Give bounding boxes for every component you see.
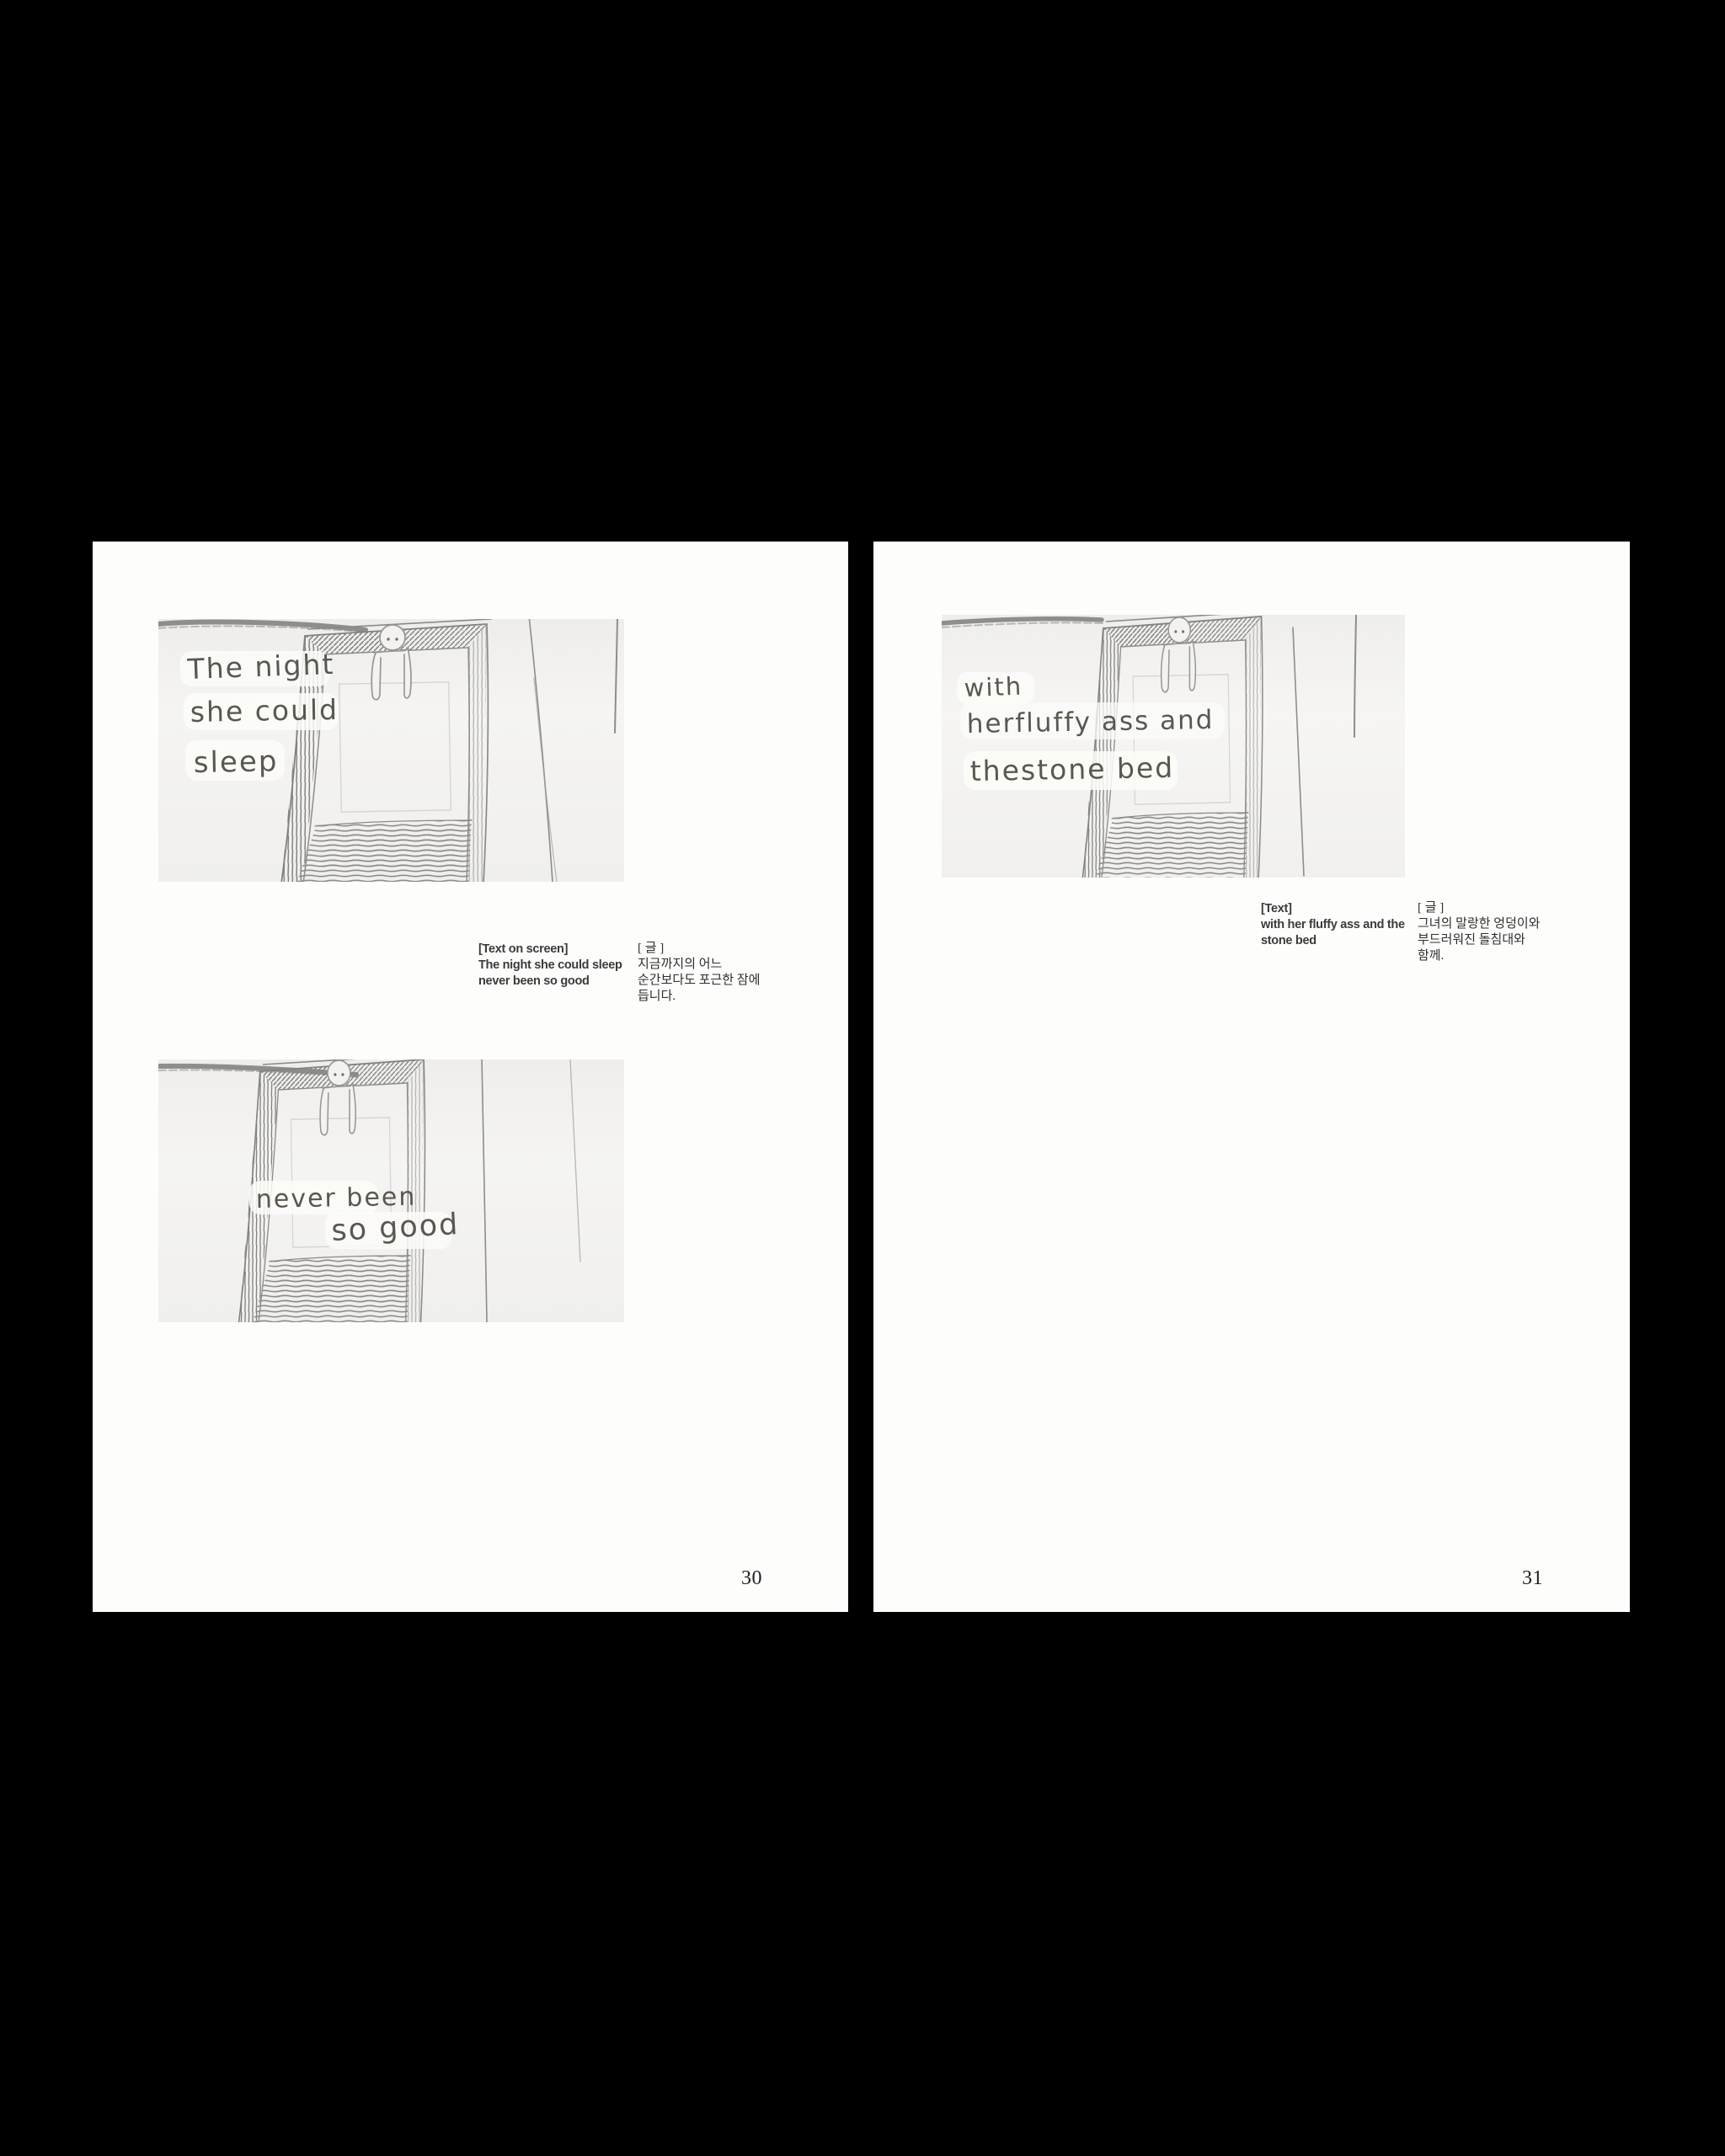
caption-en-line: never been so good — [478, 974, 632, 990]
caption-ko-line: 부드러워진 돌침대와 — [1418, 932, 1586, 948]
book-page-right: with herfluffy ass and thestone bed [Tex… — [873, 542, 1630, 1612]
handwritten-line: with — [964, 672, 1023, 702]
caption-en-line: The night she could sleep — [478, 958, 632, 974]
caption-ko-line: 그녀의 말랑한 엉덩이와 — [1418, 916, 1586, 932]
caption-english: [Text on screen] The night she could sle… — [478, 942, 632, 990]
caption-ko-line: 순간보다도 포근한 잠에 — [638, 973, 806, 989]
handwritten-line: she could — [190, 693, 339, 728]
caption-en-line: stone bed — [1261, 933, 1414, 949]
handwritten-line: never been — [256, 1182, 417, 1214]
handwritten-line: thestone bed — [969, 751, 1174, 787]
caption-ko-line: 함께. — [1418, 948, 1586, 964]
handwritten-line: herfluffy ass and — [967, 705, 1215, 739]
caption-ko-line: 듭니다. — [638, 989, 806, 1005]
caption-ko-label: [ 글 ] — [638, 941, 806, 957]
sketch-panel-never-been: never been so good — [158, 1059, 624, 1322]
book-page-left: The night she could sleep [Text on scree… — [93, 542, 848, 1612]
pdf-canvas: { "left_page": { "page_number": "30", "p… — [0, 0, 1725, 2156]
sketch-panel-night-sleep: The night she could sleep — [158, 619, 624, 882]
handwritten-line: sleep — [193, 744, 278, 780]
caption-english: [Text] with her fluffy ass and the stone… — [1261, 901, 1414, 949]
handwritten-line: The night — [186, 648, 335, 686]
caption-ko-line: 지금까지의 어느 — [638, 957, 806, 973]
caption-korean: [ 글 ] 지금까지의 어느 순간보다도 포근한 잠에 듭니다. — [638, 941, 806, 1005]
caption-ko-label: [ 글 ] — [1418, 900, 1586, 916]
handwritten-line: so good — [330, 1208, 460, 1248]
page-number-right: 31 — [1522, 1567, 1543, 1590]
caption-en-label: [Text on screen] — [478, 942, 632, 958]
caption-en-label: [Text] — [1261, 901, 1414, 917]
sketch-panel-fluffy-ass: with herfluffy ass and thestone bed — [942, 615, 1405, 878]
page-number-left: 30 — [741, 1567, 762, 1590]
caption-korean: [ 글 ] 그녀의 말랑한 엉덩이와 부드러워진 돌침대와 함께. — [1418, 900, 1586, 964]
caption-en-line: with her fluffy ass and the — [1261, 917, 1414, 933]
